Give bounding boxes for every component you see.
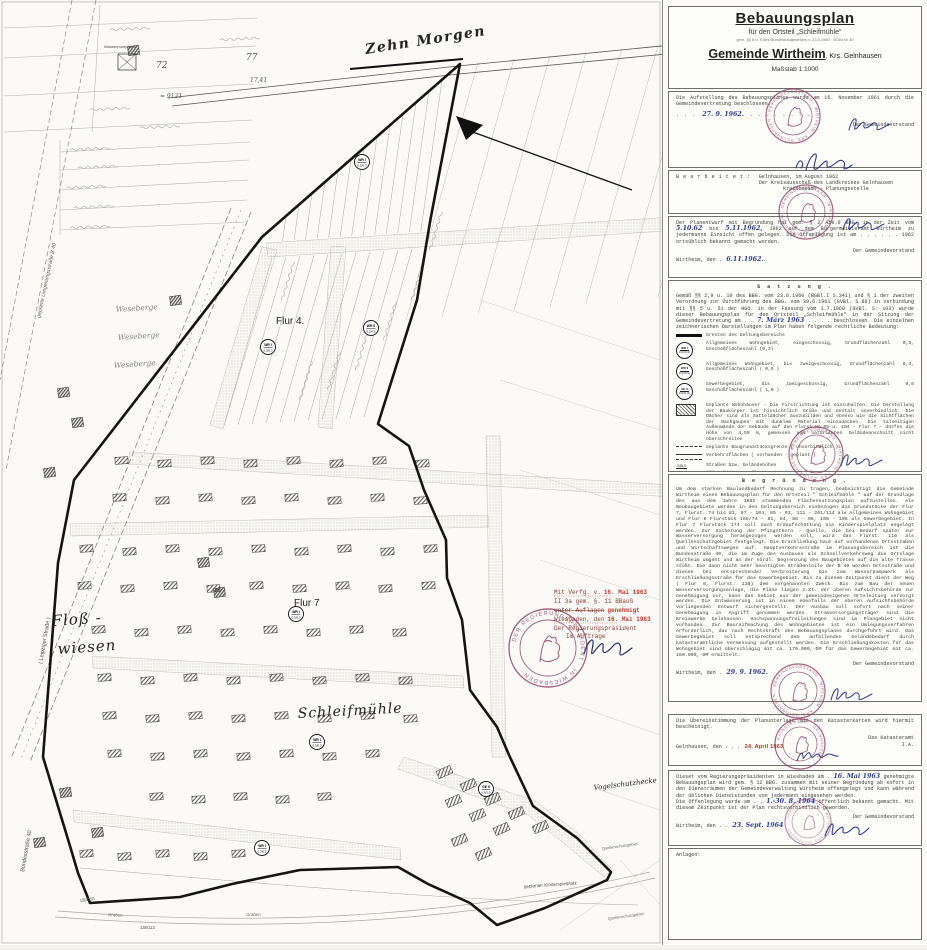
- label-flur4: Flur 4.: [276, 316, 304, 327]
- svg-text:WR I: WR I: [358, 158, 366, 162]
- svg-text:0,3/0,3: 0,3/0,3: [263, 349, 273, 353]
- label-num-72: 72: [156, 61, 168, 71]
- ia-label: I.A.: [868, 742, 914, 748]
- legal-reference: gem. §§ 8 u. 9 des Bundesbaugesetzes v. …: [676, 37, 914, 42]
- gemeindevorstand-label: Der Gemeindevorstand: [853, 814, 914, 832]
- offenlegung-1962-text: Der Planentwurf mit Begründung hat gem. …: [676, 220, 914, 245]
- city-date-line: Gelnhausen, den . . .: [676, 744, 740, 750]
- katasteramt-label: Das Katasteramt: [868, 735, 914, 741]
- plan-map: WR I 0,3/0,3 WR I 0,3/0,3 WR II 0,3/0,5 …: [0, 0, 662, 945]
- gemeindevorstand-label: Der Gemeindevorstand: [853, 248, 914, 266]
- anlagen-section: Anlagen:: [668, 848, 922, 940]
- legend-row: WR I0,3/(0,3)Allgemeines Wohngebiet, ein…: [676, 341, 914, 359]
- genehmigung-section: Dieser vom Regierungspräsidenten in Wies…: [668, 770, 922, 846]
- scanned-sheet: WR I 0,3/0,3 WR I 0,3/0,3 WR II 0,3/0,5 …: [0, 0, 927, 945]
- offenlegung-final-text: Die Offenlegung wurde am . . 1.-30. 8. 1…: [676, 799, 914, 811]
- begruendung-date-handwritten: 29. 9. 1962.: [726, 669, 768, 676]
- dotted-line: . . .: [676, 112, 696, 118]
- svg-text:WR I: WR I: [313, 738, 321, 742]
- label-flur7: Flur 7: [294, 598, 320, 609]
- aufstellung-date-handwritten: 27. 9. 1962.: [702, 111, 744, 118]
- zone-symbol: WR I 0,3/0,3: [355, 155, 370, 170]
- zone-symbol: WR II 0,3/0,5: [364, 321, 379, 336]
- svg-text:Der Regierungspräsident: Der Regierungspräsident: [554, 625, 637, 632]
- label-num-77: 77: [246, 53, 258, 63]
- satzung-intro: Gemäß §§ 2,9 u. 10 des BBG. vom 23.6.196…: [676, 293, 914, 330]
- plot-boundary-symbol: [676, 446, 702, 447]
- legend-row: Geplante Wohnhäuser - Die Firstrichtung …: [676, 403, 914, 442]
- legend-row: GE II0,6/(1,0)Gewerbegebiet, bis zweiges…: [676, 382, 914, 400]
- offenlegung-date-handwritten: 6.11.1962.: [726, 256, 763, 263]
- zone-symbol: GE II 0,6/1,0: [479, 782, 494, 797]
- legend-row: WR II0,3/(0,5)Allgemeines Wohngebiet, bi…: [676, 362, 914, 380]
- plan-title: Bebauungsplan: [676, 10, 914, 27]
- anlagen-label: Anlagen:: [676, 852, 914, 858]
- legend: Grenzen des Geltungsbereichs WR I0,3/(0,…: [676, 333, 914, 472]
- label-frac-2: 138/113: [140, 925, 155, 930]
- label-num-1741: 17,41: [250, 77, 267, 84]
- legend-row: Verkehrsflächen ( vorhanden - geplant ): [676, 453, 914, 460]
- svg-text:Im Auftrage: Im Auftrage: [566, 633, 606, 640]
- aufstellung-section: Die Aufstellung des Bebauungsplanes wurd…: [668, 91, 922, 168]
- svg-text:0,3/0,3: 0,3/0,3: [257, 850, 267, 854]
- plan-subtitle: für den Ortsteil „Schleifmühle“: [676, 29, 914, 36]
- legend-row: Grenzen des Geltungsbereichs: [676, 333, 914, 339]
- zone-symbol: WR I 0,3/0,3: [310, 735, 325, 750]
- label-wasserpumpwerk: Wasserpumpwerk: [104, 44, 136, 49]
- city-date-line: Wirtheim, den .: [676, 257, 722, 263]
- legend-row: 245,0Straßen bzw. Geländehöhen: [676, 463, 914, 469]
- svg-text:0,3/0,3: 0,3/0,3: [357, 164, 367, 168]
- svg-text:WR I: WR I: [264, 343, 272, 347]
- svg-text:Mit Verfg. v.16. Mai 1963: Mit Verfg. v.16. Mai 1963: [554, 589, 647, 596]
- svg-text:II 3a gem. §. 11 BBauG: II 3a gem. §. 11 BBauG: [554, 598, 634, 605]
- label-graben-1: Graben: [108, 912, 123, 918]
- label-floss-1: Floß -: [50, 609, 102, 631]
- svg-text:WR II: WR II: [367, 324, 376, 328]
- final-date-handwritten: 23. Sept. 1964: [732, 822, 783, 829]
- kataster-text: Die Übereinstimmung der Planunterlage mi…: [676, 718, 914, 730]
- begruendung-section: B e g r ü n d u n g . Um dem starken Bau…: [668, 474, 922, 702]
- bearbeitet-label: B e a r b e i t e t :: [676, 174, 751, 193]
- satzung-header: S a t z u n g .: [676, 284, 914, 290]
- svg-text:WR I: WR I: [258, 844, 266, 848]
- traffic-area-symbol: [676, 454, 702, 460]
- document-panel: Bebauungsplan für den Ortsteil „Schleifm…: [662, 0, 927, 945]
- gemeindevorstand-label: Der Gemeindevorstand: [853, 122, 914, 128]
- title-block: Bebauungsplan für den Ortsteil „Schleifm…: [668, 6, 922, 89]
- svg-text:0,3/0,3: 0,3/0,3: [312, 744, 322, 748]
- kataster-section: Die Übereinstimmung der Planunterlage mi…: [668, 714, 922, 766]
- svg-text:Wiesbaden, den16. Mai 1963: Wiesbaden, den16. Mai 1963: [554, 616, 651, 623]
- ge2-symbol: GE II0,6/(1,0): [676, 383, 693, 400]
- gemeinde-title: Gemeinde Wirtheim, Krs. Gelnhausen: [676, 47, 914, 61]
- zone-symbol: WR I 0,3/0,3: [255, 841, 270, 856]
- genehmigung-text: Dieser vom Regierungspräsidenten in Wies…: [676, 774, 914, 799]
- wr1-symbol: WR I0,3/(0,3): [676, 342, 693, 359]
- gemeindevorstand-label: Der Gemeindevorstand: [853, 661, 914, 679]
- bebauungsplan-scan: { "panel": { "title": { "line1": "Bebauu…: [0, 0, 927, 945]
- map-canvas: WR I 0,3/0,3 WR I 0,3/0,3 WR II 0,3/0,5 …: [0, 0, 662, 945]
- bearbeitet-line3: Kreisbauamt - Planungsstelle: [759, 186, 894, 192]
- svg-text:0,3/0,5: 0,3/0,5: [366, 330, 376, 334]
- boundary-symbol: [676, 334, 702, 337]
- svg-text:WR I: WR I: [292, 610, 300, 614]
- city-date-line: Wirtheim, den . .: [676, 823, 728, 829]
- legend-row: Öffentliche Grünflächen (Kinderspielplat…: [676, 471, 914, 472]
- svg-text:0,6/1,0: 0,6/1,0: [481, 791, 491, 795]
- svg-text:unter Auflagengenehmigt: unter Auflagengenehmigt: [554, 607, 640, 614]
- bearbeitet-section: B e a r b e i t e t : Gelnhausen, im Aug…: [668, 170, 922, 214]
- label-graben-2: Graben: [246, 912, 261, 917]
- massstab: Maßstab 1:1000: [676, 66, 914, 73]
- zone-symbol: WR I 0,3/0,3: [261, 340, 276, 355]
- aufstellung-text: Die Aufstellung des Bebauungsplanes wurd…: [676, 95, 914, 107]
- legend-row: Geplante Baugrundstücksgrenze ( unverbin…: [676, 445, 914, 451]
- planned-house-symbol: [676, 404, 696, 416]
- wr2-symbol: WR II0,3/(0,5): [676, 363, 693, 380]
- city-date-line: Wirtheim, den .: [676, 670, 722, 676]
- kataster-date-stamp: 24. April 1963: [745, 744, 784, 750]
- begruendung-header: B e g r ü n d u n g .: [676, 478, 914, 484]
- svg-text:0,3/0,3: 0,3/0,3: [291, 616, 301, 620]
- satzung-section: S a t z u n g . Gemäß §§ 2,9 u. 10 des B…: [668, 280, 922, 472]
- offenlegung-1962-section: Der Planentwurf mit Begründung hat gem. …: [668, 216, 922, 278]
- begruendung-body: Um dem starken Baulandbedarf Rechnung zu…: [676, 487, 914, 658]
- label-num-9121: = 9121: [160, 93, 182, 100]
- elevation-symbol: 245,0: [676, 464, 687, 469]
- dotted-line: . . . . . . . .: [750, 112, 811, 118]
- svg-text:GE II: GE II: [482, 785, 490, 789]
